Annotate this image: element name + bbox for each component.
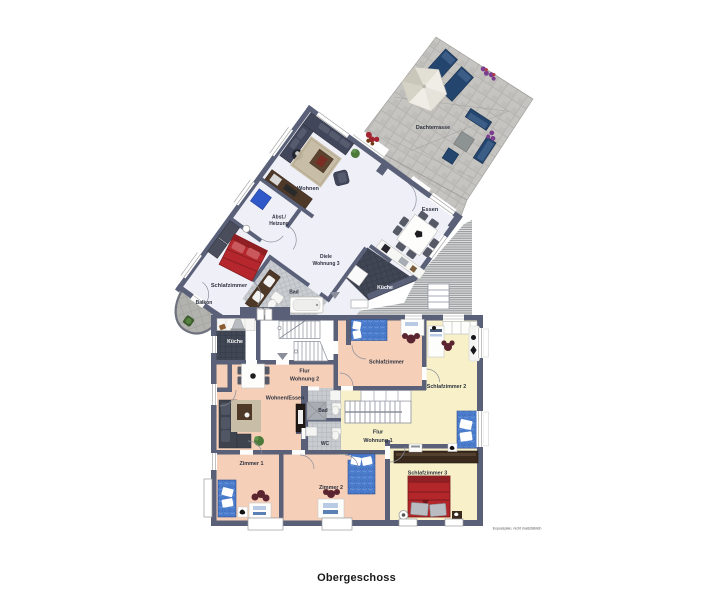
svg-text:Flur: Flur bbox=[299, 369, 310, 375]
svg-text:WC: WC bbox=[321, 441, 330, 447]
svg-text:Schlafzimmer: Schlafzimmer bbox=[211, 283, 248, 289]
svg-text:Zimmer 1: Zimmer 1 bbox=[240, 461, 264, 467]
svg-text:Diele: Diele bbox=[320, 254, 332, 260]
svg-text:Dachterrasse: Dachterrasse bbox=[416, 125, 450, 131]
svg-text:Obergeschoss: Obergeschoss bbox=[317, 572, 396, 584]
svg-text:Schlafzimmer 2: Schlafzimmer 2 bbox=[427, 384, 467, 390]
svg-text:Bad: Bad bbox=[289, 290, 298, 296]
svg-text:Flur: Flur bbox=[373, 430, 384, 436]
svg-text:Heizung: Heizung bbox=[269, 221, 288, 227]
svg-text:Wohnung 1: Wohnung 1 bbox=[363, 438, 392, 444]
svg-text:Abst./: Abst./ bbox=[272, 215, 287, 221]
svg-text:Bad: Bad bbox=[318, 408, 327, 414]
svg-text:Zimmer 2: Zimmer 2 bbox=[319, 485, 343, 491]
svg-text:Wohnen/Essen: Wohnen/Essen bbox=[266, 396, 305, 402]
svg-text:Küche: Küche bbox=[227, 339, 243, 345]
svg-text:Essen: Essen bbox=[422, 207, 439, 213]
svg-text:Balkon: Balkon bbox=[196, 300, 213, 306]
svg-text:Küche: Küche bbox=[377, 285, 393, 291]
svg-text:Schlafzimmer: Schlafzimmer bbox=[369, 360, 405, 366]
svg-text:Wohnen: Wohnen bbox=[297, 186, 320, 192]
svg-text:Schlafzimmer 3: Schlafzimmer 3 bbox=[408, 471, 448, 477]
svg-text:Wohnung 3: Wohnung 3 bbox=[312, 261, 339, 267]
svg-text:Exposéplan, nicht maßstäblich: Exposéplan, nicht maßstäblich bbox=[493, 527, 542, 531]
svg-text:Wohnung 2: Wohnung 2 bbox=[290, 377, 319, 383]
